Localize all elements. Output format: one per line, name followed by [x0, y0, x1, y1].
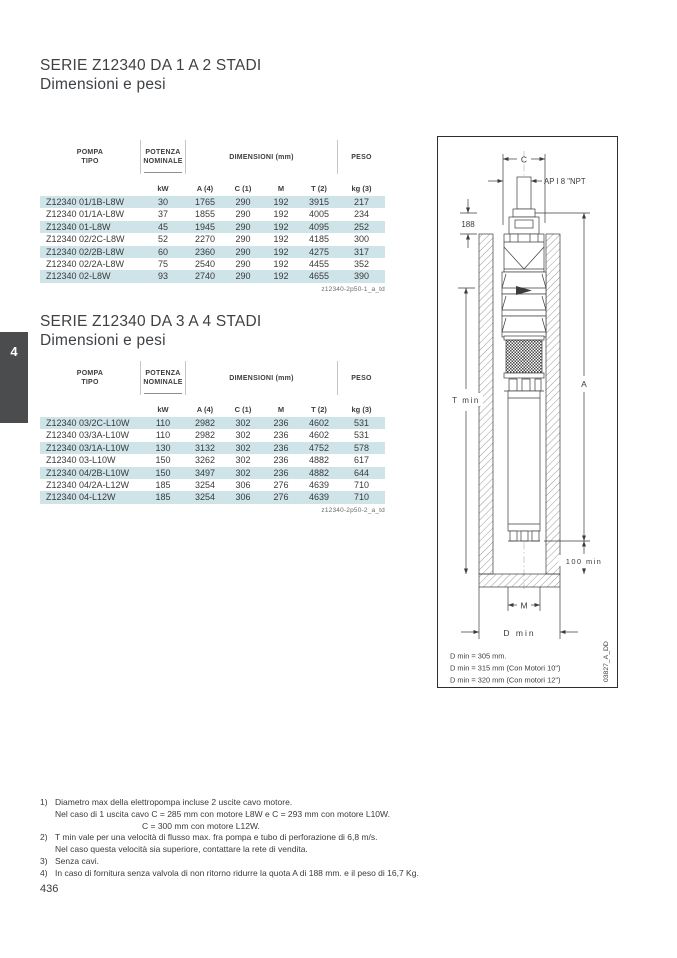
diagram-note-1: D min = 305 mm. [450, 652, 506, 661]
unit-kw: kW [140, 405, 186, 414]
cell-pump-type: Z12340 04-L12W [40, 491, 140, 503]
chapter-tab-number: 4 [0, 332, 28, 359]
cell-t: 4882 [300, 467, 338, 479]
table-row: Z12340 01/1A-L8W 37 1855 290 192 4005 23… [40, 208, 385, 220]
header-pompa: POMPA [40, 369, 140, 378]
table-row: Z12340 02/2A-L8W 75 2540 290 192 4455 35… [40, 258, 385, 270]
header-nominale: NOMINALE [141, 157, 185, 166]
cell-kw: 185 [140, 479, 186, 491]
table-row: Z12340 02/2C-L8W 52 2270 290 192 4185 30… [40, 233, 385, 245]
cell-kw: 185 [140, 491, 186, 503]
cell-pump-type: Z12340 03/2C-L10W [40, 417, 140, 429]
cell-t: 4095 [300, 221, 338, 233]
cell-pump-type: Z12340 01/1B-L8W [40, 196, 140, 208]
cell-kg: 644 [338, 467, 385, 479]
cell-pump-type: Z12340 02/2A-L8W [40, 258, 140, 270]
table-row: Z12340 03/2C-L10W 110 2982 302 236 4602 … [40, 417, 385, 429]
cell-a: 3132 [186, 442, 224, 454]
cell-kg: 710 [338, 491, 385, 503]
cell-kg: 617 [338, 454, 385, 466]
cell-t: 4639 [300, 479, 338, 491]
section-1-title-block: SERIE Z12340 DA 1 A 2 STADI Dimensioni e… [40, 56, 261, 94]
table-row: Z12340 03/3A-L10W 110 2982 302 236 4602 … [40, 429, 385, 441]
dim-label-d-min: D min [503, 628, 535, 638]
cell-a: 2982 [186, 417, 224, 429]
table-1-reference-id: z12340-2p50-1_a_td [40, 286, 385, 293]
cell-c: 290 [224, 246, 262, 258]
unit-c: C (1) [224, 405, 262, 414]
cell-t: 4602 [300, 417, 338, 429]
cell-kw: 37 [140, 208, 186, 220]
cell-kw: 150 [140, 454, 186, 466]
cell-t: 4882 [300, 454, 338, 466]
header-dimensioni: DIMENSIONI (mm) [186, 361, 338, 395]
header-peso: PESO [338, 140, 385, 174]
cell-a: 3254 [186, 479, 224, 491]
cell-a: 3254 [186, 491, 224, 503]
cell-pump-type: Z12340 03/3A-L10W [40, 429, 140, 441]
page-number: 436 [40, 883, 58, 895]
cell-m: 236 [262, 467, 300, 479]
unit-m: M [262, 405, 300, 414]
cell-m: 276 [262, 479, 300, 491]
cell-m: 192 [262, 246, 300, 258]
footnote-number: 1) [40, 797, 55, 832]
dim-label-100-min: 100 min [566, 557, 602, 566]
footnotes: 1) Diametro max della elettropompa inclu… [40, 797, 645, 880]
footnote-1: 1) Diametro max della elettropompa inclu… [40, 797, 645, 832]
footnote-line: C = 300 mm con motore L12W. [142, 821, 645, 833]
footnote-line: In caso di fornitura senza valvola di no… [55, 868, 645, 880]
cell-a: 2982 [186, 429, 224, 441]
cell-kw: 30 [140, 196, 186, 208]
cell-pump-type: Z12340 01/1A-L8W [40, 208, 140, 220]
cell-m: 276 [262, 491, 300, 503]
cell-t: 4185 [300, 233, 338, 245]
unit-c: C (1) [224, 184, 262, 193]
header-tipo: TIPO [40, 378, 140, 387]
cell-t: 4639 [300, 491, 338, 503]
cell-a: 1855 [186, 208, 224, 220]
cell-t: 4655 [300, 270, 338, 282]
unit-kg: kg (3) [338, 184, 385, 193]
cell-pump-type: Z12340 03/1A-L10W [40, 442, 140, 454]
cell-t: 4005 [300, 208, 338, 220]
cell-kg: 352 [338, 258, 385, 270]
cell-a: 2540 [186, 258, 224, 270]
cell-m: 192 [262, 208, 300, 220]
dim-label-188: 188 [461, 220, 475, 229]
section-2-title: SERIE Z12340 DA 3 A 4 STADI [40, 312, 261, 331]
cell-pump-type: Z12340 01-L8W [40, 221, 140, 233]
dim-label-m: M [520, 601, 527, 611]
table-row: Z12340 04/2B-L10W 150 3497 302 236 4882 … [40, 467, 385, 479]
chapter-tab: 4 [0, 332, 28, 423]
cell-c: 290 [224, 196, 262, 208]
dim-label-a: A [581, 379, 587, 389]
header-dimensioni: DIMENSIONI (mm) [186, 140, 338, 174]
footnote-line: T min vale per una velocità di flusso ma… [55, 832, 645, 844]
strainer [506, 340, 542, 373]
cell-t: 4275 [300, 246, 338, 258]
unit-kw: kW [140, 184, 186, 193]
header-peso: PESO [338, 361, 385, 395]
cell-m: 236 [262, 454, 300, 466]
cell-pump-type: Z12340 02/2B-L8W [40, 246, 140, 258]
cell-c: 302 [224, 429, 262, 441]
cell-pump-type: Z12340 02/2C-L8W [40, 233, 140, 245]
header-potenza-nominale: POTENZA NOMINALE [140, 361, 186, 395]
cell-kg: 710 [338, 479, 385, 491]
cell-m: 192 [262, 233, 300, 245]
cell-a: 3262 [186, 454, 224, 466]
cell-c: 290 [224, 258, 262, 270]
table-2-units-row: kW A (4) C (1) M T (2) kg (3) [40, 395, 385, 417]
dim-label-t-min: T min [452, 396, 480, 405]
cell-t: 4602 [300, 429, 338, 441]
cell-pump-type: Z12340 02-L8W [40, 270, 140, 282]
table-row: Z12340 04-L12W 185 3254 306 276 4639 710 [40, 491, 385, 503]
footnote-line: Nel caso questa velocità sia superiore, … [55, 844, 645, 856]
dimensions-table-2: POMPA TIPO POTENZA NOMINALE DIMENSIONI (… [40, 361, 385, 514]
dim-label-c: C [521, 155, 527, 165]
pump-body [502, 177, 546, 541]
cell-pump-type: Z12340 04/2B-L10W [40, 467, 140, 479]
header-potenza: POTENZA [141, 369, 185, 378]
table-row: Z12340 02/2B-L8W 60 2360 290 192 4275 31… [40, 246, 385, 258]
cell-kw: 75 [140, 258, 186, 270]
cell-t: 4455 [300, 258, 338, 270]
header-pompa-tipo: POMPA TIPO [40, 361, 140, 395]
dim-label-npt: AP I 8 "NPT [544, 177, 586, 186]
pump-technical-drawing: C AP I 8 "NPT 188 T min A 100 min M D mi… [438, 137, 617, 687]
cell-kg: 531 [338, 429, 385, 441]
cell-kg: 317 [338, 246, 385, 258]
table-1-group-header: POMPA TIPO POTENZA NOMINALE DIMENSIONI (… [40, 140, 385, 174]
footnote-line: Senza cavi. [55, 856, 645, 868]
diagram-note-2: D min = 315 mm (Con Motori 10") [450, 664, 560, 673]
catalog-page: 4 SERIE Z12340 DA 1 A 2 STADI Dimensioni… [0, 0, 677, 958]
cell-kg: 252 [338, 221, 385, 233]
cell-kw: 110 [140, 429, 186, 441]
cell-kw: 110 [140, 417, 186, 429]
cell-a: 2270 [186, 233, 224, 245]
cell-c: 302 [224, 467, 262, 479]
section-2-subtitle: Dimensioni e pesi [40, 331, 261, 350]
cell-kg: 300 [338, 233, 385, 245]
cell-a: 2360 [186, 246, 224, 258]
cell-kg: 578 [338, 442, 385, 454]
cell-m: 236 [262, 417, 300, 429]
header-potenza-nominale: POTENZA NOMINALE [140, 140, 186, 174]
section-2-title-block: SERIE Z12340 DA 3 A 4 STADI Dimensioni e… [40, 312, 261, 350]
cell-m: 192 [262, 258, 300, 270]
cell-t: 4752 [300, 442, 338, 454]
cell-c: 306 [224, 491, 262, 503]
footnote-3: 3) Senza cavi. [40, 856, 645, 868]
table-row: Z12340 03-L10W 150 3262 302 236 4882 617 [40, 454, 385, 466]
cell-kw: 60 [140, 246, 186, 258]
cell-m: 236 [262, 442, 300, 454]
table-2-body: Z12340 03/2C-L10W 110 2982 302 236 4602 … [40, 417, 385, 504]
table-row: Z12340 03/1A-L10W 130 3132 302 236 4752 … [40, 442, 385, 454]
footnote-2: 2) T min vale per una velocità di flusso… [40, 832, 645, 856]
header-pompa: POMPA [40, 148, 140, 157]
cell-kg: 390 [338, 270, 385, 282]
cell-pump-type: Z12340 04/2A-L12W [40, 479, 140, 491]
unit-t: T (2) [300, 405, 338, 414]
header-nominale: NOMINALE [141, 378, 185, 387]
unit-a: A (4) [186, 184, 224, 193]
installation-diagram: C AP I 8 "NPT 188 T min A 100 min M D mi… [437, 136, 618, 688]
footnote-line: Diametro max della elettropompa incluse … [55, 797, 645, 809]
cell-a: 2740 [186, 270, 224, 282]
cell-c: 302 [224, 417, 262, 429]
header-tipo: TIPO [40, 157, 140, 166]
cell-c: 290 [224, 270, 262, 282]
cell-m: 192 [262, 270, 300, 282]
footnote-4: 4) In caso di fornitura senza valvola di… [40, 868, 645, 880]
cell-pump-type: Z12340 03-L10W [40, 454, 140, 466]
cell-kw: 150 [140, 467, 186, 479]
table-2-reference-id: z12340-2p50-2_a_td [40, 507, 385, 514]
table-1-units-row: kW A (4) C (1) M T (2) kg (3) [40, 174, 385, 196]
section-1-subtitle: Dimensioni e pesi [40, 75, 261, 94]
table-row: Z12340 01/1B-L8W 30 1765 290 192 3915 21… [40, 196, 385, 208]
footnote-number: 3) [40, 856, 55, 868]
cell-kw: 45 [140, 221, 186, 233]
cell-c: 290 [224, 221, 262, 233]
cell-kg: 531 [338, 417, 385, 429]
table-2-group-header: POMPA TIPO POTENZA NOMINALE DIMENSIONI (… [40, 361, 385, 395]
cell-a: 1765 [186, 196, 224, 208]
motor [508, 391, 540, 531]
cell-kg: 217 [338, 196, 385, 208]
cell-t: 3915 [300, 196, 338, 208]
cell-kw: 93 [140, 270, 186, 282]
table-row: Z12340 01-L8W 45 1945 290 192 4095 252 [40, 221, 385, 233]
footnote-number: 2) [40, 832, 55, 856]
header-pompa-tipo: POMPA TIPO [40, 140, 140, 174]
cell-c: 302 [224, 454, 262, 466]
footnote-line: Nel caso di 1 uscita cavo C = 285 mm con… [55, 809, 645, 821]
cell-c: 290 [224, 233, 262, 245]
unit-a: A (4) [186, 405, 224, 414]
unit-t: T (2) [300, 184, 338, 193]
cell-a: 3497 [186, 467, 224, 479]
unit-m: M [262, 184, 300, 193]
cell-kg: 234 [338, 208, 385, 220]
cell-c: 290 [224, 208, 262, 220]
footnote-number: 4) [40, 868, 55, 880]
cell-c: 306 [224, 479, 262, 491]
cell-a: 1945 [186, 221, 224, 233]
cell-kw: 130 [140, 442, 186, 454]
cell-c: 302 [224, 442, 262, 454]
table-row: Z12340 04/2A-L12W 185 3254 306 276 4639 … [40, 479, 385, 491]
cell-m: 192 [262, 196, 300, 208]
unit-kg: kg (3) [338, 405, 385, 414]
table-row: Z12340 02-L8W 93 2740 290 192 4655 390 [40, 270, 385, 282]
table-1-body: Z12340 01/1B-L8W 30 1765 290 192 3915 21… [40, 196, 385, 283]
cell-kw: 52 [140, 233, 186, 245]
diagram-note-3: D min = 320 mm (Con motori 12") [450, 676, 560, 685]
cell-m: 236 [262, 429, 300, 441]
drawing-id: 03827_A_DD [603, 641, 610, 682]
section-1-title: SERIE Z12340 DA 1 A 2 STADI [40, 56, 261, 75]
cell-m: 192 [262, 221, 300, 233]
dimensions-table-1: POMPA TIPO POTENZA NOMINALE DIMENSIONI (… [40, 140, 385, 293]
header-potenza: POTENZA [141, 148, 185, 157]
